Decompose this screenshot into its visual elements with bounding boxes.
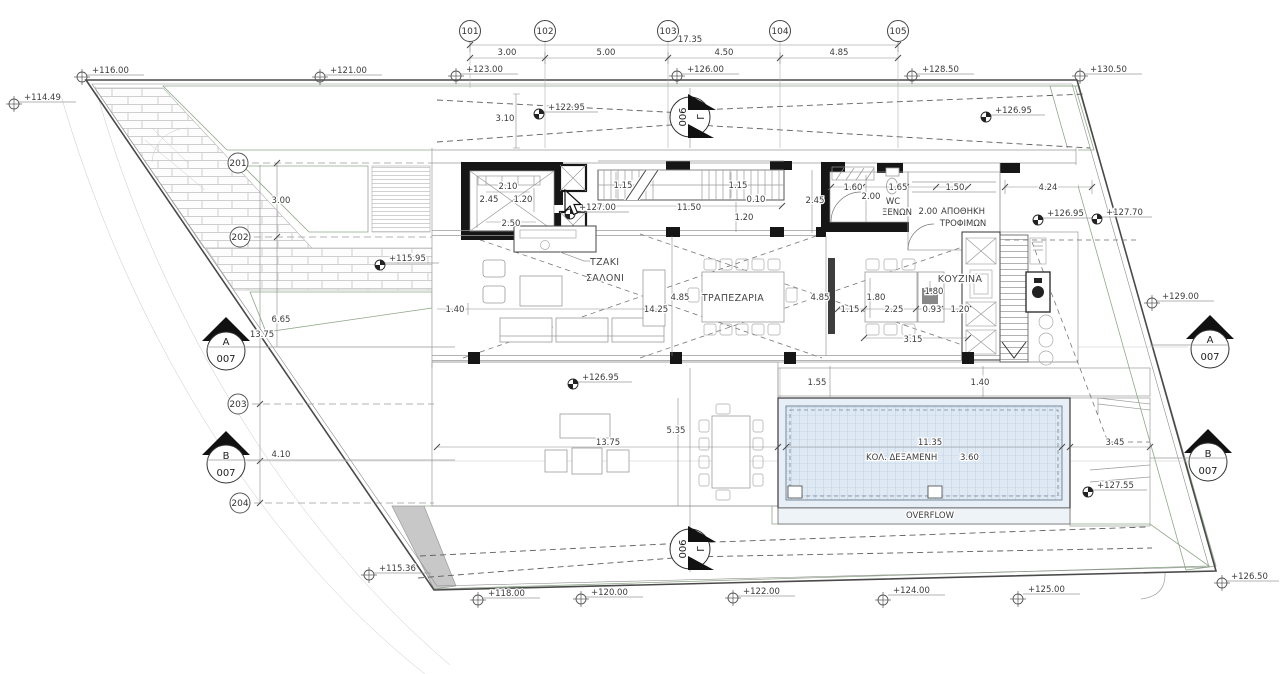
pool-deck-right [1070, 398, 1150, 526]
level-label: +122.00 [743, 587, 780, 597]
benchmark-icon [875, 592, 891, 608]
grid-label: 102 [536, 27, 553, 37]
outdoor-sofa [560, 414, 610, 438]
spot-elevation-icon [534, 109, 544, 119]
grid-label: 103 [659, 27, 676, 37]
benchmark-icon [1072, 68, 1088, 84]
dim-label: 4.50 [715, 48, 734, 58]
dim-label: 3.45 [1106, 438, 1125, 448]
dim-label: 2.50 [502, 219, 521, 229]
dim-label: 2.00 [919, 207, 938, 217]
landscape-steps [372, 166, 430, 232]
level-label: +114.49 [24, 93, 61, 103]
grid-label: 101 [461, 27, 478, 37]
level-label: +129.00 [1162, 292, 1199, 302]
grid-label: 105 [889, 27, 906, 37]
spot-elevation-icon [981, 112, 991, 122]
section-sheet: 007 [1198, 466, 1217, 477]
spot-level-label: +127.55 [1097, 481, 1134, 491]
spot-level-label: +127.00 [579, 203, 616, 213]
dim-label: 3.00 [498, 48, 517, 58]
overflow-label: OVERFLOW [906, 511, 955, 521]
site-plan-drawing: 101 102 103 104 105 201 202 203 204 A 00… [0, 0, 1280, 674]
dim-label: 14.25 [644, 305, 668, 315]
dim-label: 6.65 [272, 315, 291, 325]
dim-label: 4.85 [830, 48, 849, 58]
armchair-2 [483, 286, 505, 303]
spot-elevation-icon [375, 260, 385, 270]
dim-label: 3.10 [496, 114, 515, 124]
section-letter: A [223, 337, 230, 348]
benchmark-icon [573, 591, 589, 607]
coffee-table [520, 276, 562, 306]
level-label: +121.00 [330, 66, 367, 76]
room-label-fireplace: ΤΖΑΚΙ [589, 257, 619, 268]
section-sheet: 006 [678, 539, 689, 558]
benchmark-icon [725, 590, 741, 606]
deck-strip-upper-pool [778, 368, 1150, 396]
dim-label: 4.10 [272, 450, 291, 460]
dim-label: 1.60 [844, 183, 863, 193]
outdoor-chair [545, 450, 567, 472]
spot-level-label: +122.95 [548, 103, 585, 113]
section-letter: Γ [696, 114, 707, 120]
dim-label: 4.24 [1039, 183, 1058, 193]
section-letter: B [1205, 449, 1212, 460]
room-label-dining: ΤΡΑΠΕΖΑΡΙΑ [701, 293, 764, 304]
outdoor-table [572, 448, 602, 474]
dim-label: 13.75 [250, 330, 274, 340]
dim-label: 4.85 [671, 293, 690, 303]
room-label-living: ΣΑΛΟΝΙ [586, 273, 624, 284]
spot-level-label: +115.95 [389, 254, 426, 264]
level-label: +126.00 [687, 65, 724, 75]
section-sheet: 006 [678, 107, 689, 126]
section-letter: B [223, 451, 230, 462]
benchmark-icon [1144, 295, 1160, 311]
benchmark-icon [1214, 575, 1230, 591]
sofa [500, 318, 552, 342]
dim-label: 1.80 [925, 287, 944, 297]
dim-label: 1.15 [729, 181, 748, 191]
armchair [483, 260, 505, 277]
dim-label: 1.65 [889, 183, 908, 193]
section-marker-A-left: A 007 [202, 317, 455, 370]
outdoor-chair-2 [607, 450, 629, 472]
section-sheet: 007 [1200, 352, 1219, 363]
grid-label: 202 [231, 233, 248, 243]
room-label-kitchen: ΚΟΥΖΙΝΑ [938, 274, 983, 285]
spot-level-label: +126.95 [995, 106, 1032, 116]
dim-label: 2.45 [806, 196, 825, 206]
benchmark-icon [1010, 591, 1026, 607]
section-letter: A [1207, 335, 1214, 346]
dim-label: 5.35 [667, 426, 686, 436]
section-marker-A-right: A 007 [1150, 315, 1234, 368]
dim-label: 0.93 [923, 305, 942, 315]
spot-elevation-icon [1092, 214, 1102, 224]
benchmark-icon [361, 567, 377, 583]
dim-label: 13.75 [596, 438, 620, 448]
kitchen-counter [962, 232, 1000, 360]
grid-label: 203 [229, 400, 246, 410]
level-label: +124.00 [893, 586, 930, 596]
level-label: +125.00 [1028, 585, 1065, 595]
dim-label: 4.85 [811, 293, 830, 303]
dim-label: 1.55 [808, 378, 827, 388]
spot-elevation-icon [1033, 215, 1043, 225]
dim-label: 1.15 [841, 305, 860, 315]
section-letter: Γ [696, 546, 707, 552]
level-label: +116.00 [92, 66, 129, 76]
masonry-paving-upper [95, 88, 312, 248]
level-label: +115.36 [379, 564, 416, 574]
pool-depth-label: 3.60 [960, 453, 979, 463]
benchmark-icon [6, 96, 22, 112]
level-label: +126.50 [1231, 572, 1268, 582]
dim-label: 2.10 [499, 182, 518, 192]
benchmark-icon [904, 68, 920, 84]
room-label-wc: WC [886, 197, 900, 207]
gate-arc [1141, 573, 1165, 599]
section-marker-gamma-bottom: 006 Γ [670, 526, 716, 570]
dim-label: 11.50 [677, 203, 701, 213]
dim-label: 0.10 [747, 195, 766, 205]
bbq-burner-icon [1032, 286, 1044, 298]
level-label: +128.50 [922, 65, 959, 75]
dim-label: 1.20 [735, 213, 754, 223]
benchmark-icon [312, 69, 328, 85]
dim-label: 17.35 [678, 35, 702, 45]
dim-label: 1.20 [514, 195, 533, 205]
spot-elevation-icon [1083, 487, 1093, 497]
dim-label: 1.50 [946, 183, 965, 193]
level-label: +123.00 [466, 65, 503, 75]
room-label-pantry2: ΤΡΟΦΙΜΩΝ [939, 219, 986, 229]
level-label: +120.00 [591, 588, 628, 598]
dim-label: 3.15 [904, 335, 923, 345]
benchmark-icon [669, 68, 685, 84]
dim-label: 1.20 [951, 305, 970, 315]
level-label: +118.00 [488, 589, 525, 599]
sofa-2 [556, 318, 608, 342]
spot-level-label: +127.70 [1106, 208, 1143, 218]
room-label-pantry: ΑΠΟΘΗΚΗ [941, 207, 985, 217]
spot-elevation-icon [568, 379, 578, 389]
pool-skimmer-2 [928, 486, 942, 498]
grid-label: 204 [231, 499, 248, 509]
dim-label: 2.45 [480, 195, 499, 205]
benchmark-icon [470, 592, 486, 608]
side-ramp [1000, 235, 1028, 362]
room-label-wc2: ΞΕΝΩΝ [882, 208, 912, 218]
grid-label: 201 [229, 159, 246, 169]
dim-label: 1.15 [614, 181, 633, 191]
section-marker-B-right: B 007 [1150, 429, 1232, 481]
section-marker-B-left: B 007 [202, 431, 455, 483]
pool-skimmer [788, 486, 802, 498]
dim-label: 2.00 [862, 192, 881, 202]
dim-label: 5.00 [597, 48, 616, 58]
room-label-pool: ΚΟΛ. ΔΕΞΑΜΕΝΗ [866, 453, 937, 463]
dim-label: 2.25 [885, 305, 904, 315]
spot-level-label: +126.95 [1047, 209, 1084, 219]
entry-walkway [517, 88, 585, 150]
section-sheet: 007 [216, 468, 235, 479]
grid-label: 104 [771, 27, 788, 37]
dim-label: 3.00 [272, 196, 291, 206]
dim-label: 1.40 [971, 378, 990, 388]
level-label: +130.50 [1090, 65, 1127, 75]
dim-label: 1.80 [867, 293, 886, 303]
dim-label: 1.40 [446, 305, 465, 315]
planting-top-band [163, 86, 1094, 150]
floor-plan-canvas[interactable]: 101 102 103 104 105 201 202 203 204 A 00… [0, 0, 1280, 674]
dim-label: 11.35 [918, 438, 942, 448]
outdoor-dining-table [712, 416, 750, 488]
spot-level-label: +126.95 [582, 373, 619, 383]
section-sheet: 007 [216, 354, 235, 365]
benchmark-icon [448, 68, 464, 84]
section-marker-gamma-top: 006 Γ [670, 94, 716, 138]
tv-cabinet [643, 270, 665, 326]
